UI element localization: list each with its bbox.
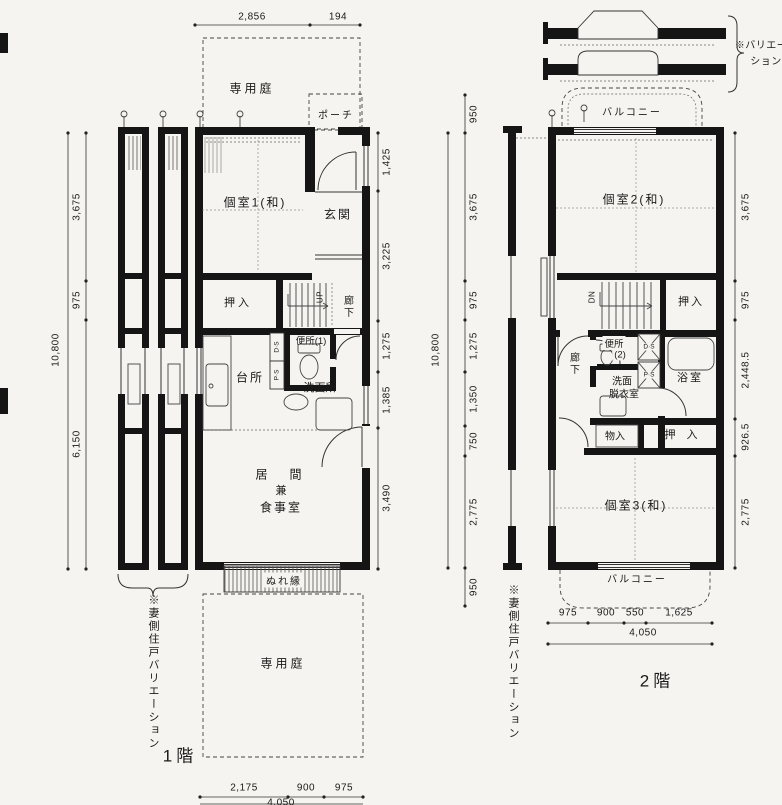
dim-2f-left-5: 750 [469, 432, 480, 450]
duct-ps-label-1f: P·S [274, 370, 281, 381]
dim-1f-bottom-total: 4,050 [267, 798, 295, 805]
room-label-oshiire-top-2f: 押入 [678, 293, 704, 309]
dim-1f-left-2: 6,150 [72, 430, 83, 458]
dim-2f-bottom-1: 900 [597, 608, 615, 619]
floorplan-canvas: .wl{fill:#151515;stroke:none} .wht{fill:… [0, 0, 782, 805]
balcony-top-label: バルコニー [602, 104, 662, 119]
dim-2f-left-4: 1,350 [469, 385, 480, 413]
dim-2f-right-2: 2,448.5 [741, 352, 752, 389]
dim-1f-bottom-1: 900 [297, 783, 315, 794]
dim-1f-left-1: 975 [72, 291, 83, 309]
room-label-living-3: 食事室 [260, 499, 302, 516]
dim-2f-left-0: 950 [469, 105, 480, 123]
room-label-wash-2: 脱衣室 [609, 386, 639, 401]
room-label-room2: 個室2(和) [603, 191, 666, 208]
dim-1f-right-2: 1,275 [382, 332, 393, 360]
dim-2f-bottom-total: 4,050 [629, 628, 657, 639]
room-label-washroom-1f: 洗面所 [304, 379, 337, 395]
dim-2f-left-3: 1,275 [469, 332, 480, 360]
plan-1f-gardens [203, 38, 363, 757]
dim-2f-left-6: 2,775 [469, 498, 480, 526]
room-label-room1: 個室1(和) [224, 194, 287, 211]
room-label-porch: ポーチ [318, 107, 354, 122]
duct-ps-label-2f: P·S [642, 372, 657, 379]
dim-2f-left-1: 3,675 [469, 193, 480, 221]
dim-1f-top-0: 2,856 [238, 12, 266, 23]
dim-2f-left-7: 950 [469, 578, 480, 596]
room-label-entrance: 玄関 [324, 206, 352, 223]
variation-detail-sections [543, 11, 744, 92]
variation-note-line2: ション [750, 53, 782, 68]
room-label-garden-top: 専用庭 [229, 80, 274, 97]
room-label-bath: 浴室 [677, 369, 703, 385]
engawa-label: ぬれ縁 [264, 573, 304, 588]
dim-1f-right-3: 1,385 [382, 386, 393, 414]
dim-2f-bottom-3: 1,625 [665, 608, 693, 619]
floor-label-1f: 1階 [163, 742, 197, 767]
wall-markers-1f [121, 111, 243, 127]
balcony-bottom-label: バルコニー [607, 571, 667, 586]
variation-note-line1: ※バリエー [735, 37, 782, 52]
duct-ds-label-1f: D·S [274, 341, 281, 352]
stairs-up-1f [288, 283, 332, 327]
dim-1f-left-total: 10,800 [51, 333, 62, 367]
dim-2f-left-2: 975 [469, 291, 480, 309]
floor-label-2f: 2階 [640, 667, 674, 692]
room-label-kitchen: 台所 [236, 369, 264, 386]
room-label-garden-bottom: 専用庭 [260, 655, 305, 672]
room-label-hallway-2f: 廊下 [566, 352, 581, 376]
dim-2f-right-0: 3,675 [741, 193, 752, 221]
dim-2f-bottom-0: 975 [559, 608, 577, 619]
dim-2f-right-3: 926.5 [741, 423, 752, 451]
dim-1f-left-0: 3,675 [72, 193, 83, 221]
dim-1f-bottom-2: 975 [335, 783, 353, 794]
room-label-room3: 個室3(和) [605, 497, 668, 514]
dim-lines-1f [66, 23, 379, 804]
side-note-1f: ※妻側住戸バリエーション [145, 594, 161, 750]
duct-ds-label-2f: D·S [641, 344, 656, 351]
room-label-toilet-2f-1: 便所 [602, 336, 625, 350]
edge-fragments [0, 33, 8, 414]
side-variation-walls-1f [117, 127, 189, 596]
dim-2f-left-total: 10,800 [431, 333, 442, 367]
room-label-living-2: 兼 [276, 482, 287, 498]
dim-2f-right-4: 2,775 [741, 498, 752, 526]
stairs-down-label: DN [588, 291, 597, 304]
room-label-toilet-2f-2: (2) [612, 350, 628, 361]
stairs-down-2f [600, 282, 652, 329]
stairs-up-label: UP [316, 291, 325, 303]
room-label-hallway-1f: 廊下 [340, 295, 355, 319]
dim-1f-right-1: 3,225 [382, 242, 393, 270]
room-label-living-1: 居 間 [255, 466, 306, 483]
dim-2f-bottom-2: 550 [626, 608, 644, 619]
room-label-oshiire-bottom-2f: 押 入 [665, 426, 698, 442]
room-label-toilet-1f: 便所(1) [296, 333, 327, 347]
side-note-2f: ※妻側住戸バリエーション [505, 584, 521, 740]
dim-1f-right-4: 3,490 [382, 484, 393, 512]
dim-1f-right-0: 1,425 [382, 148, 393, 176]
dim-1f-bottom-0: 2,175 [230, 783, 258, 794]
dim-2f-right-1: 975 [741, 291, 752, 309]
room-label-storage: 物入 [605, 428, 625, 443]
room-label-oshiire-1f: 押入 [224, 294, 252, 310]
side-variation-wall-2f [503, 126, 522, 570]
dim-1f-top-1: 194 [329, 12, 347, 23]
